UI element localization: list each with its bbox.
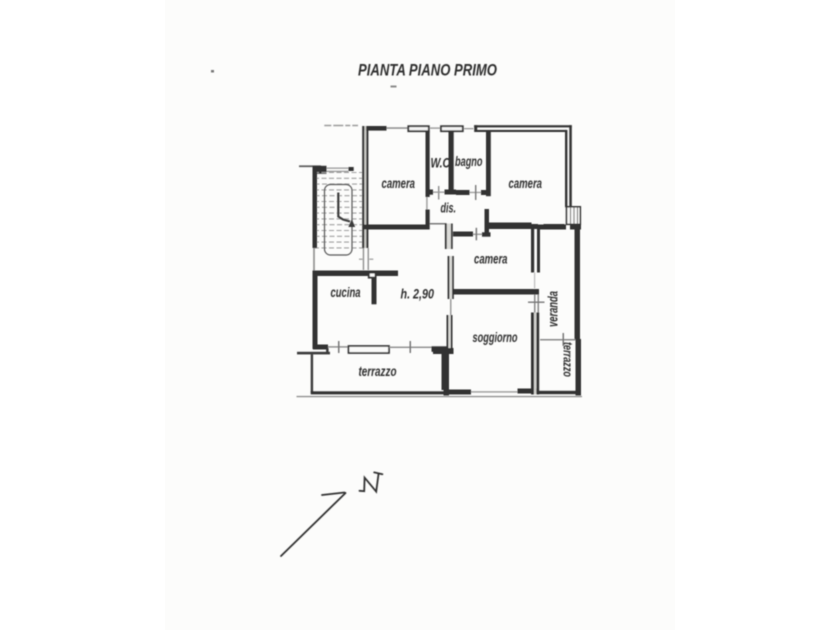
svg-text:h. 2,90: h. 2,90 [401,287,435,302]
svg-text:dis.: dis. [441,201,457,216]
svg-text:soggiorno: soggiorno [473,330,518,345]
svg-text:veranda: veranda [546,291,561,327]
svg-text:camera: camera [474,252,508,267]
svg-text:terrazzo: terrazzo [561,342,576,377]
svg-text:camera: camera [509,176,543,191]
svg-text:PIANTA PIANO PRIMO: PIANTA PIANO PRIMO [358,62,497,80]
svg-text:bagno: bagno [455,154,483,169]
svg-text:camera: camera [382,176,416,191]
svg-text:terrazzo: terrazzo [359,364,397,379]
svg-text:W.C: W.C [431,156,451,171]
svg-text:cucina: cucina [331,285,361,300]
